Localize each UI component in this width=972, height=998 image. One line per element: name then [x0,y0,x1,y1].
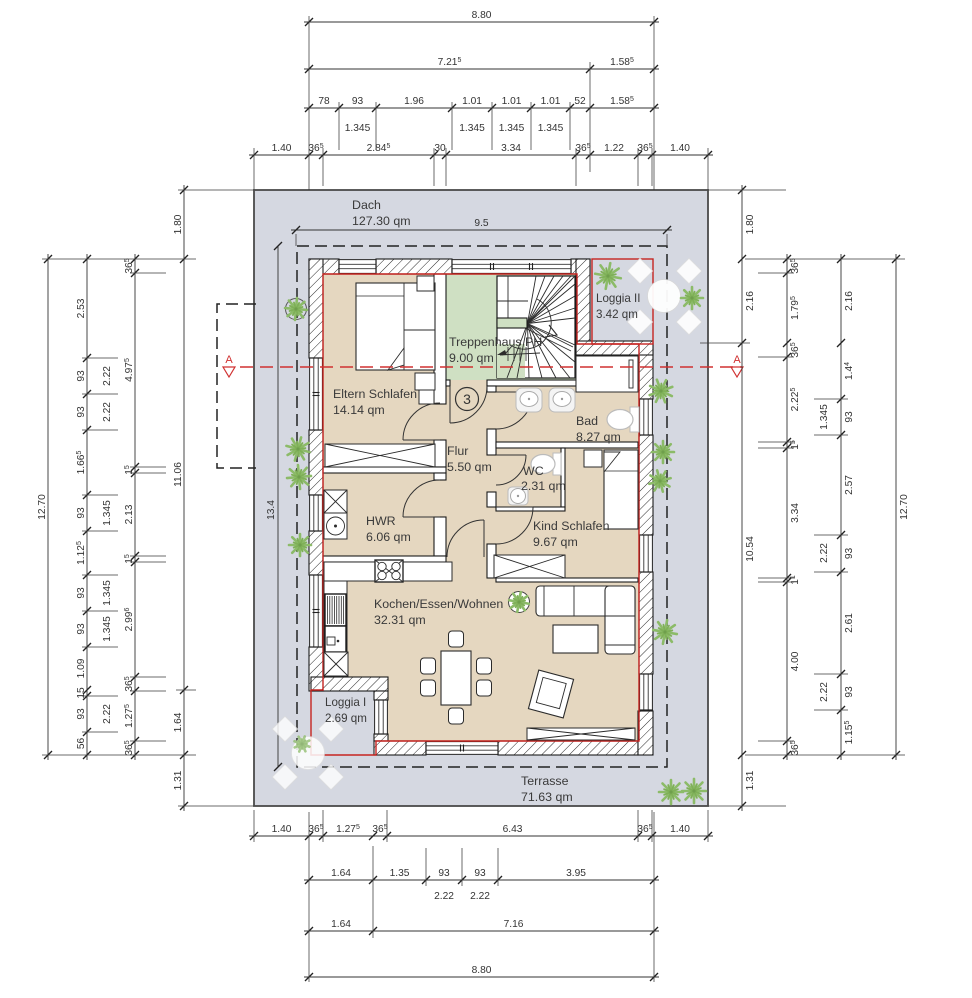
svg-text:9.00 qm: 9.00 qm [449,351,494,365]
svg-text:1.345: 1.345 [499,123,525,134]
svg-text:3: 3 [463,391,471,407]
svg-text:8.27 qm: 8.27 qm [576,430,621,444]
svg-text:93: 93 [76,406,87,418]
svg-text:1.64: 1.64 [173,712,184,732]
svg-text:1.31: 1.31 [173,770,184,790]
svg-text:2.22: 2.22 [434,891,454,902]
svg-text:2.61: 2.61 [844,613,855,633]
svg-text:Flur: Flur [447,444,468,458]
svg-text:93: 93 [76,507,87,519]
svg-text:A: A [733,354,741,366]
svg-text:4.00: 4.00 [790,651,801,671]
svg-text:1.09: 1.09 [76,658,87,678]
svg-text:1.01: 1.01 [502,96,522,107]
svg-text:1.345: 1.345 [819,404,830,430]
svg-text:1.96: 1.96 [404,96,424,107]
svg-text:3.34: 3.34 [501,143,521,154]
svg-text:10.54: 10.54 [745,536,756,562]
svg-text:1.40: 1.40 [670,143,690,154]
svg-text:7.16: 7.16 [504,919,524,930]
svg-text:11.06: 11.06 [173,462,184,487]
svg-text:52: 52 [574,96,586,107]
svg-text:Bad: Bad [576,414,598,428]
svg-text:Loggia II: Loggia II [596,292,640,305]
svg-text:2.22: 2.22 [102,366,113,386]
svg-text:Kochen/Essen/Wohnen: Kochen/Essen/Wohnen [374,597,503,611]
svg-text:93: 93 [438,868,450,879]
svg-text:1.345: 1.345 [345,123,371,134]
svg-text:1.40: 1.40 [272,824,292,835]
svg-text:1.22: 1.22 [604,143,624,154]
svg-text:93: 93 [76,370,87,382]
svg-text:1.80: 1.80 [745,214,756,234]
svg-text:1.345: 1.345 [459,123,485,134]
svg-text:93: 93 [352,96,364,107]
svg-text:2.69 qm: 2.69 qm [325,712,367,725]
svg-text:2.22: 2.22 [102,704,113,724]
svg-text:HWR: HWR [366,514,396,528]
svg-text:93: 93 [76,623,87,635]
svg-text:93: 93 [76,587,87,599]
svg-text:2.13: 2.13 [124,504,135,524]
svg-text:3.42 qm: 3.42 qm [596,308,638,321]
svg-text:93: 93 [844,686,855,698]
svg-text:1.64: 1.64 [331,868,351,879]
svg-text:12.70: 12.70 [899,494,910,520]
svg-text:2.22: 2.22 [102,402,113,422]
svg-text:2.31 qm: 2.31 qm [521,479,566,493]
svg-text:9.67 qm: 9.67 qm [533,535,578,549]
svg-text:Loggia I: Loggia I [325,696,366,709]
svg-text:127.30 qm: 127.30 qm [352,214,411,228]
svg-text:1.01: 1.01 [541,96,561,107]
svg-text:1.80: 1.80 [173,214,184,234]
svg-text:2.16: 2.16 [745,291,756,311]
svg-text:6.43: 6.43 [503,824,523,835]
svg-text:15: 15 [76,687,87,699]
svg-text:1.35: 1.35 [390,868,410,879]
svg-text:14.14 qm: 14.14 qm [333,403,385,417]
svg-text:WC: WC [523,464,544,478]
svg-text:2.16: 2.16 [844,291,855,311]
svg-text:1.345: 1.345 [538,123,564,134]
svg-text:8.80: 8.80 [472,10,492,21]
svg-text:Eltern Schlafen: Eltern Schlafen [333,387,417,401]
svg-text:13.4: 13.4 [266,500,277,520]
svg-text:Treppenhaus PH: Treppenhaus PH [449,335,542,349]
svg-text:9.5: 9.5 [474,218,488,229]
svg-text:8.80: 8.80 [472,965,492,976]
svg-text:56: 56 [76,738,87,750]
svg-text:1.01: 1.01 [462,96,482,107]
svg-text:2.22: 2.22 [819,543,830,563]
svg-text:6.06 qm: 6.06 qm [366,530,411,544]
svg-text:Kind Schlafen: Kind Schlafen [533,519,610,533]
svg-text:71.63 qm: 71.63 qm [521,790,573,804]
svg-text:2.22: 2.22 [470,891,490,902]
svg-text:5.50 qm: 5.50 qm [447,460,492,474]
svg-text:78: 78 [318,96,330,107]
svg-text:93: 93 [474,868,486,879]
svg-text:3.34: 3.34 [790,503,801,523]
svg-text:93: 93 [844,548,855,560]
svg-text:A: A [225,354,233,366]
svg-text:1.64: 1.64 [331,919,351,930]
svg-text:93: 93 [76,708,87,720]
svg-text:1.345: 1.345 [102,616,113,642]
svg-text:Dach: Dach [352,198,381,212]
svg-text:1.345: 1.345 [102,500,113,526]
svg-text:32.31 qm: 32.31 qm [374,613,426,627]
svg-text:3.95: 3.95 [566,868,586,879]
svg-text:12.70: 12.70 [37,494,48,520]
svg-text:Terrasse: Terrasse [521,774,569,788]
svg-text:2.53: 2.53 [76,298,87,318]
svg-text:93: 93 [844,411,855,423]
svg-text:1.31: 1.31 [745,770,756,790]
svg-text:30: 30 [434,143,446,154]
svg-text:1.40: 1.40 [272,143,292,154]
svg-text:2.57: 2.57 [844,475,855,495]
svg-text:2.22: 2.22 [819,682,830,702]
svg-text:1.40: 1.40 [670,824,690,835]
svg-text:1.345: 1.345 [102,580,113,606]
